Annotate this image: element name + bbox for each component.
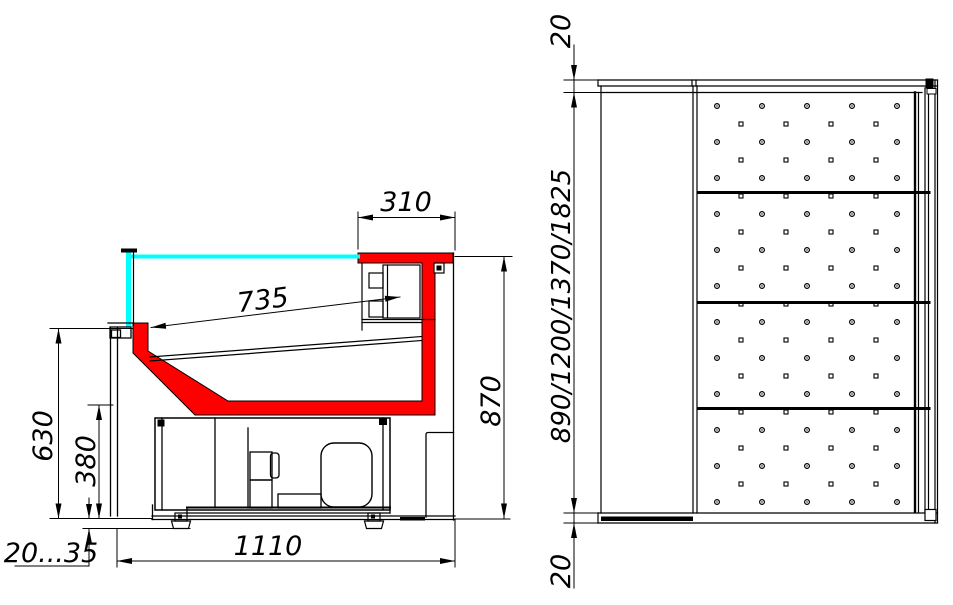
dim-630-label: 630	[28, 410, 59, 462]
component-tray	[278, 494, 321, 508]
dim-735-label: 735	[235, 282, 290, 319]
leveling-feet	[172, 513, 384, 529]
technical-drawing-page: 310 735 870 630	[0, 0, 953, 605]
glass-top-cap	[121, 249, 137, 253]
dim-310-label: 310	[380, 187, 432, 218]
louver-tab	[369, 301, 383, 317]
component-box-lower	[250, 480, 272, 508]
dim-rear-overhang-label: 20	[546, 14, 577, 48]
dim-front-overhang-label: 20	[546, 554, 577, 588]
red-deck-profile	[133, 253, 453, 415]
side-view-drawing: 310 735 870 630	[4, 187, 512, 569]
top-view-drawing: 20 890/1200/1370/1825 20	[546, 14, 938, 588]
display-case-drawing: 310 735 870 630	[0, 0, 953, 605]
front-bumper-bar	[601, 517, 693, 522]
dimension-630: 630	[28, 329, 152, 519]
machine-compartment	[155, 418, 390, 513]
dim-380-label: 380	[71, 435, 102, 487]
dimension-735: 735	[151, 282, 400, 329]
dim-1110-label: 1110	[234, 531, 303, 562]
dimension-380: 380	[71, 405, 113, 519]
dim-foot-adjust-label: 20...35	[4, 538, 98, 569]
corner-detail-bottom-right	[925, 510, 936, 521]
leveling-foot	[365, 513, 384, 529]
dim-lengths-label: 890/1200/1370/1825	[547, 169, 577, 443]
louver-tab	[369, 273, 383, 288]
component-box-upper	[250, 452, 272, 480]
dim-870-label: 870	[476, 375, 507, 427]
deck-surface-lines	[150, 337, 422, 362]
dimension-310: 310	[358, 187, 455, 250]
corner-detail-top-right	[926, 79, 934, 89]
compressor-outline	[321, 443, 372, 507]
leveling-foot	[172, 513, 191, 529]
rear-step	[426, 433, 454, 518]
dimension-top-view: 20 890/1200/1370/1825 20	[546, 14, 601, 588]
dimension-1110: 1110	[117, 520, 455, 567]
dimension-870: 870	[455, 257, 512, 520]
